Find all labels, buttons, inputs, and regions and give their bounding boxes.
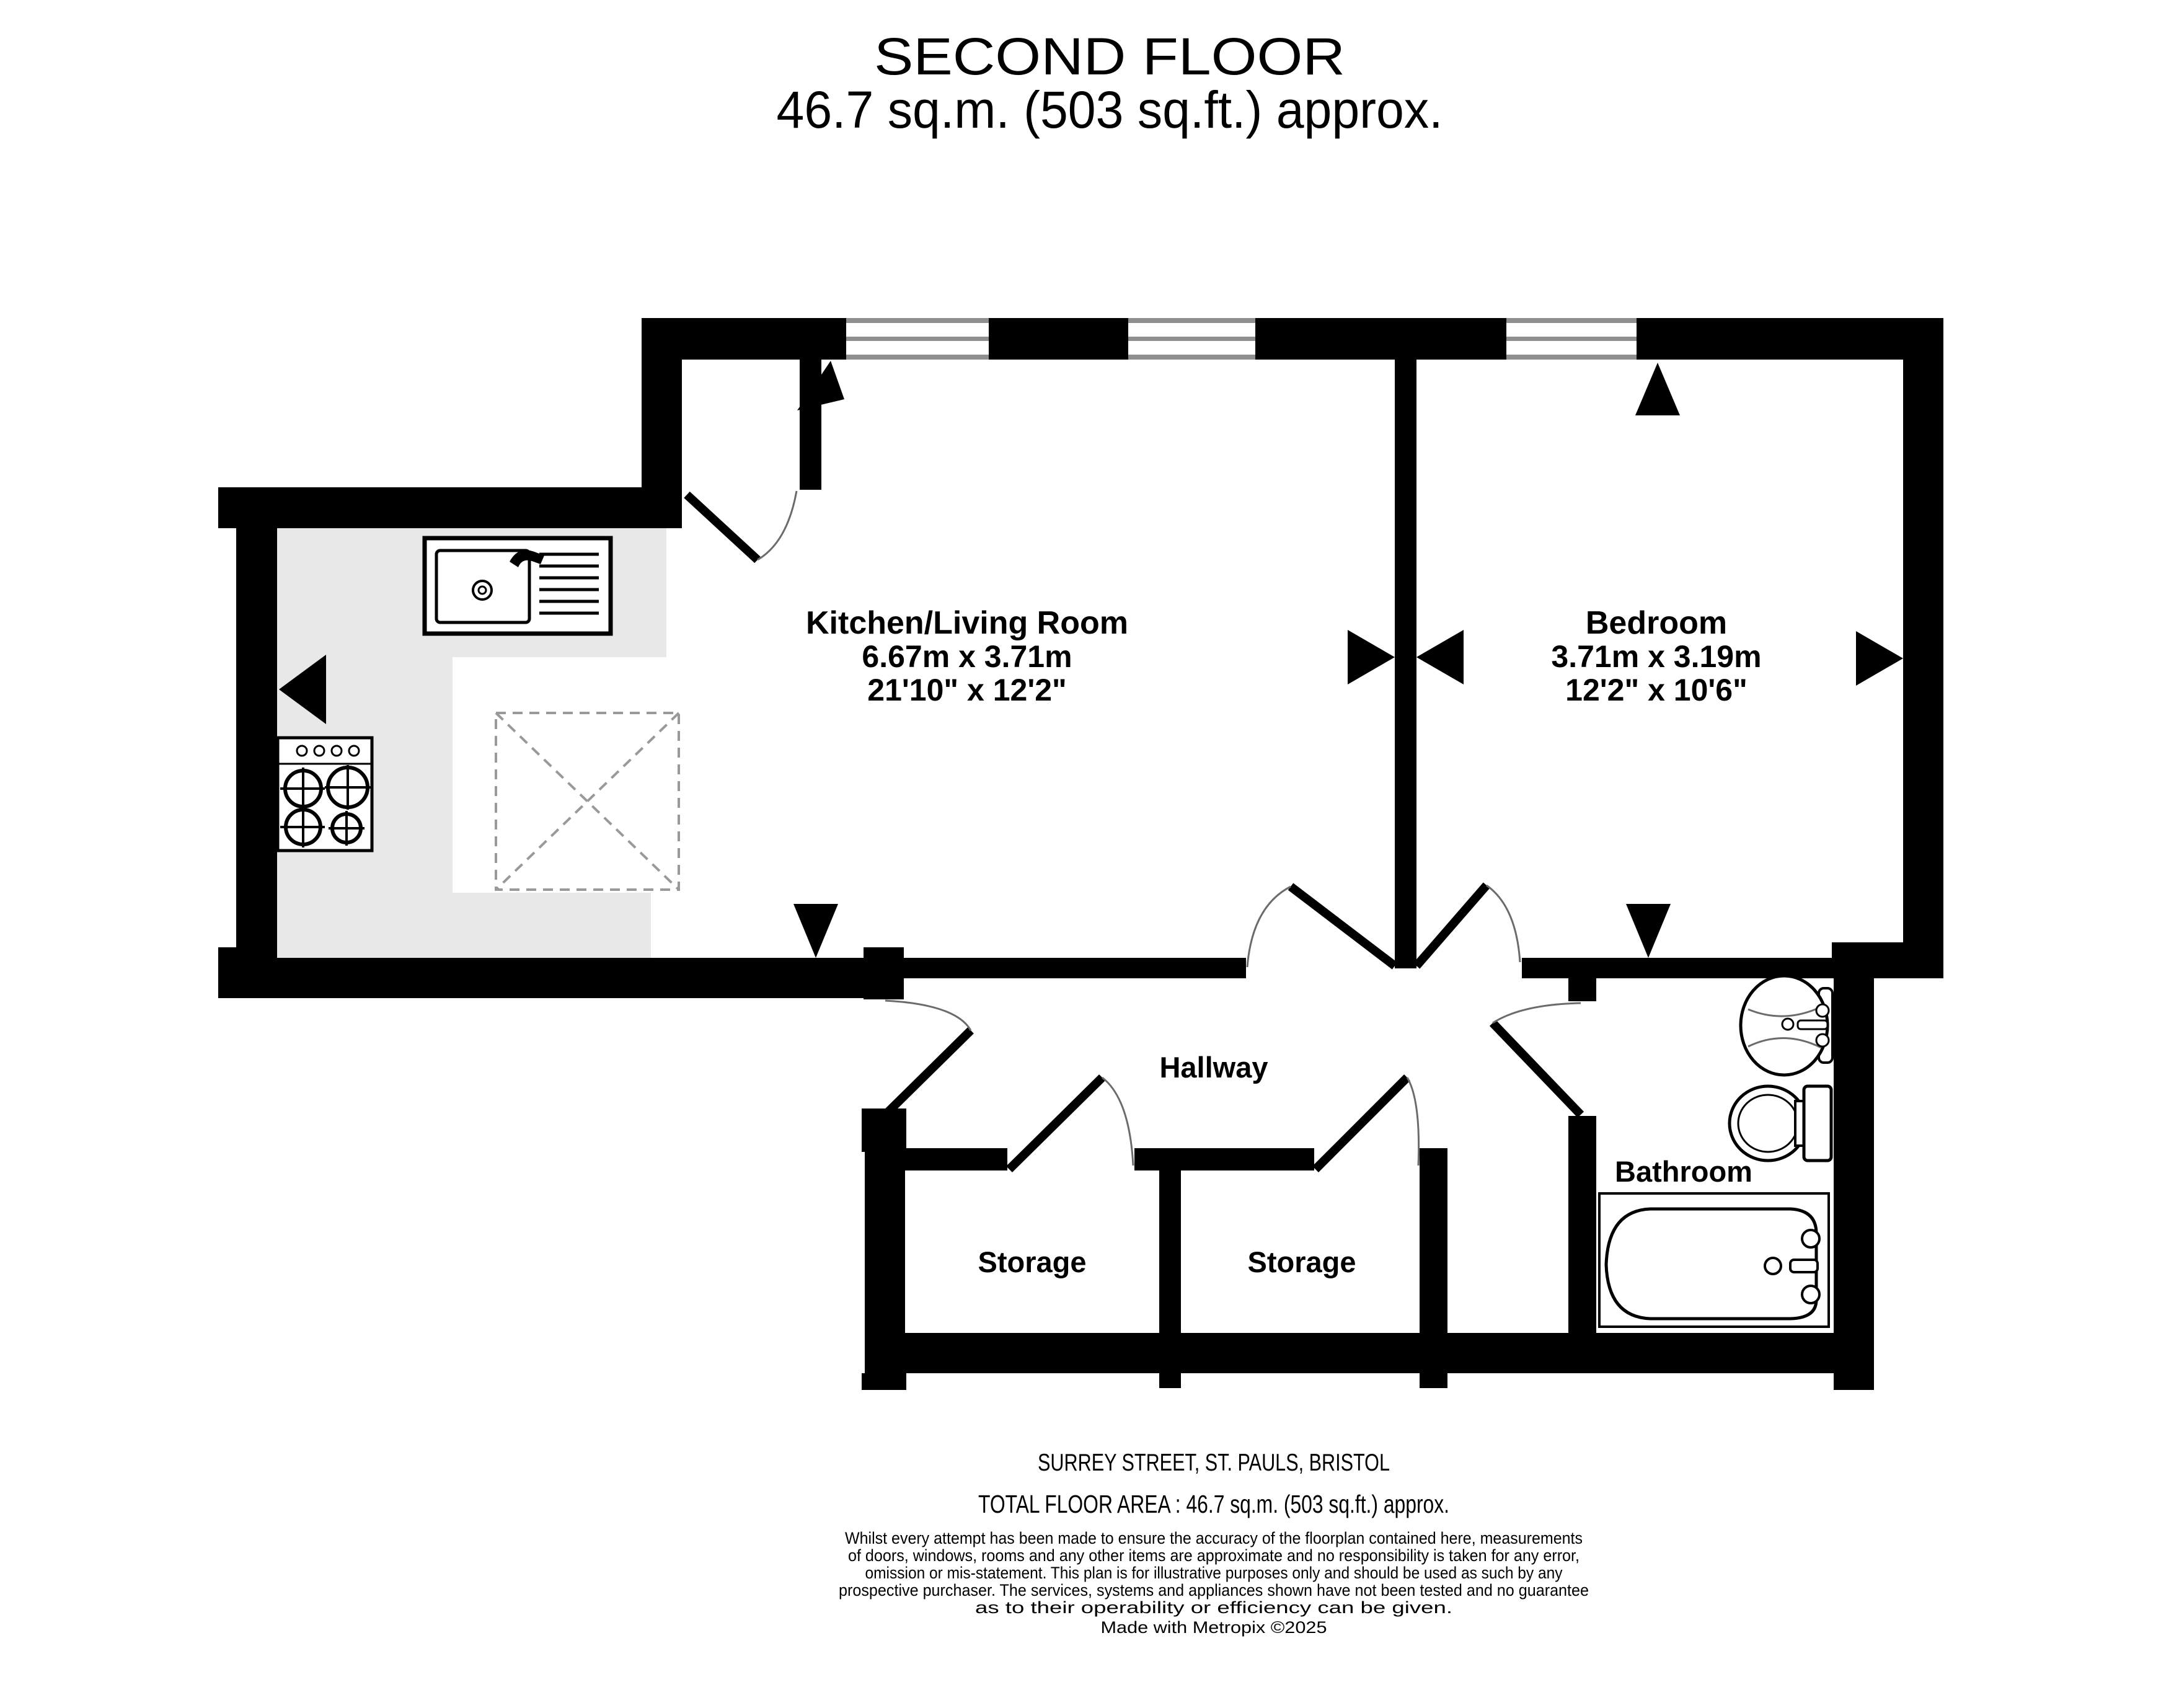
bedroom-dim-m: 3.71m x 3.19m: [1551, 639, 1761, 674]
storage1-door: [1009, 1077, 1133, 1169]
wall-segment: [800, 360, 821, 490]
wall-segment: [218, 487, 682, 528]
wall-segment: [865, 1333, 1874, 1373]
wall-segment: [236, 958, 902, 998]
room-labels: Kitchen/Living Room 6.67m x 3.71m 21'10"…: [806, 605, 1762, 1278]
plan-title: SECOND FLOOR 46.7 sq.m. (503 sq.ft.) app…: [777, 27, 1443, 139]
arrow-left-icon: [1416, 630, 1464, 684]
wall-segment: [642, 318, 1943, 360]
arrow-down-icon: [793, 904, 838, 958]
wall-segment: [236, 528, 277, 998]
wall-segment: [1834, 1373, 1874, 1390]
floorplan-svg: SECOND FLOOR 46.7 sq.m. (503 sq.ft.) app…: [0, 0, 2174, 1708]
wall-segment: [1159, 1373, 1181, 1388]
address-line: SURREY STREET, ST. PAULS, BRISTOL: [1038, 1449, 1390, 1476]
wall-segment: [862, 1108, 906, 1152]
arrow-right-icon: [1348, 630, 1395, 684]
disclaimer-line: Whilst every attempt has been made to en…: [845, 1529, 1583, 1547]
window-kitchen-2: [1128, 318, 1255, 360]
kitchen-dim-m: 6.67m x 3.71m: [862, 639, 1072, 674]
storage2-label: Storage: [1248, 1246, 1356, 1278]
wall-segment: [862, 1373, 906, 1390]
hallway-left-door: [885, 1001, 971, 1115]
arrow-right-icon: [1856, 631, 1903, 686]
disclaimer-line: omission or mis-statement. This plan is …: [865, 1564, 1563, 1582]
stove-icon: [278, 738, 372, 851]
disclaimer-line: as to their operability or efficiency ca…: [975, 1598, 1452, 1617]
window-kitchen-1: [846, 318, 989, 360]
storage2-door: [1315, 1077, 1419, 1169]
wall-segment: [1395, 360, 1416, 968]
bathroom-door: [1493, 1003, 1581, 1115]
kitchen-label: Kitchen/Living Room: [806, 605, 1128, 641]
doors: [687, 491, 1581, 1169]
dashed-void-square: [496, 713, 679, 890]
bathtub-icon: [1599, 1193, 1829, 1327]
floor-title: SECOND FLOOR: [874, 27, 1345, 86]
wall-segment: [1568, 958, 1596, 1001]
kitchen-door: [1247, 887, 1395, 967]
wall-segment: [1159, 1170, 1181, 1333]
wall-segment: [1568, 1116, 1596, 1333]
footer: SURREY STREET, ST. PAULS, BRISTOL TOTAL …: [839, 1449, 1589, 1637]
disclaimer-line: of doors, windows, rooms and any other i…: [848, 1546, 1580, 1565]
sink-drainer-icon: [425, 538, 611, 634]
metropix-credit: Made with Metropix ©2025: [1101, 1618, 1327, 1637]
wall-segment: [1903, 318, 1943, 978]
storage1-label: Storage: [978, 1246, 1087, 1278]
wall-segment: [1834, 978, 1874, 1373]
bedroom-label: Bedroom: [1586, 605, 1727, 641]
wall-segment: [1134, 1148, 1314, 1170]
wall-segment: [905, 1148, 1007, 1170]
total-floor-area: TOTAL FLOOR AREA : 46.7 sq.m. (503 sq.ft…: [978, 1490, 1449, 1518]
wall-segment: [1420, 1148, 1447, 1333]
arrow-up-icon: [1635, 363, 1680, 415]
bathroom-label: Bathroom: [1615, 1155, 1752, 1188]
arrow-down-icon: [1626, 904, 1671, 958]
entry-door: [687, 491, 797, 560]
toilet-icon: [1730, 1086, 1831, 1161]
wall-segment: [1420, 1373, 1447, 1388]
floor-area-subtitle: 46.7 sq.m. (503 sq.ft.) approx.: [777, 81, 1443, 139]
window-bedroom: [1506, 318, 1637, 360]
hallway-label: Hallway: [1159, 1051, 1268, 1084]
disclaimer-line: prospective purchaser. The services, sys…: [839, 1581, 1589, 1600]
kitchen-dim-ft: 21'10" x 12'2": [867, 673, 1066, 707]
bedroom-door: [1416, 885, 1520, 966]
basin-icon: [1741, 976, 1832, 1075]
windows: [846, 318, 1637, 360]
bedroom-dim-ft: 12'2" x 10'6": [1565, 673, 1748, 707]
wall-segment: [864, 947, 904, 999]
wall-segment: [902, 958, 1246, 978]
